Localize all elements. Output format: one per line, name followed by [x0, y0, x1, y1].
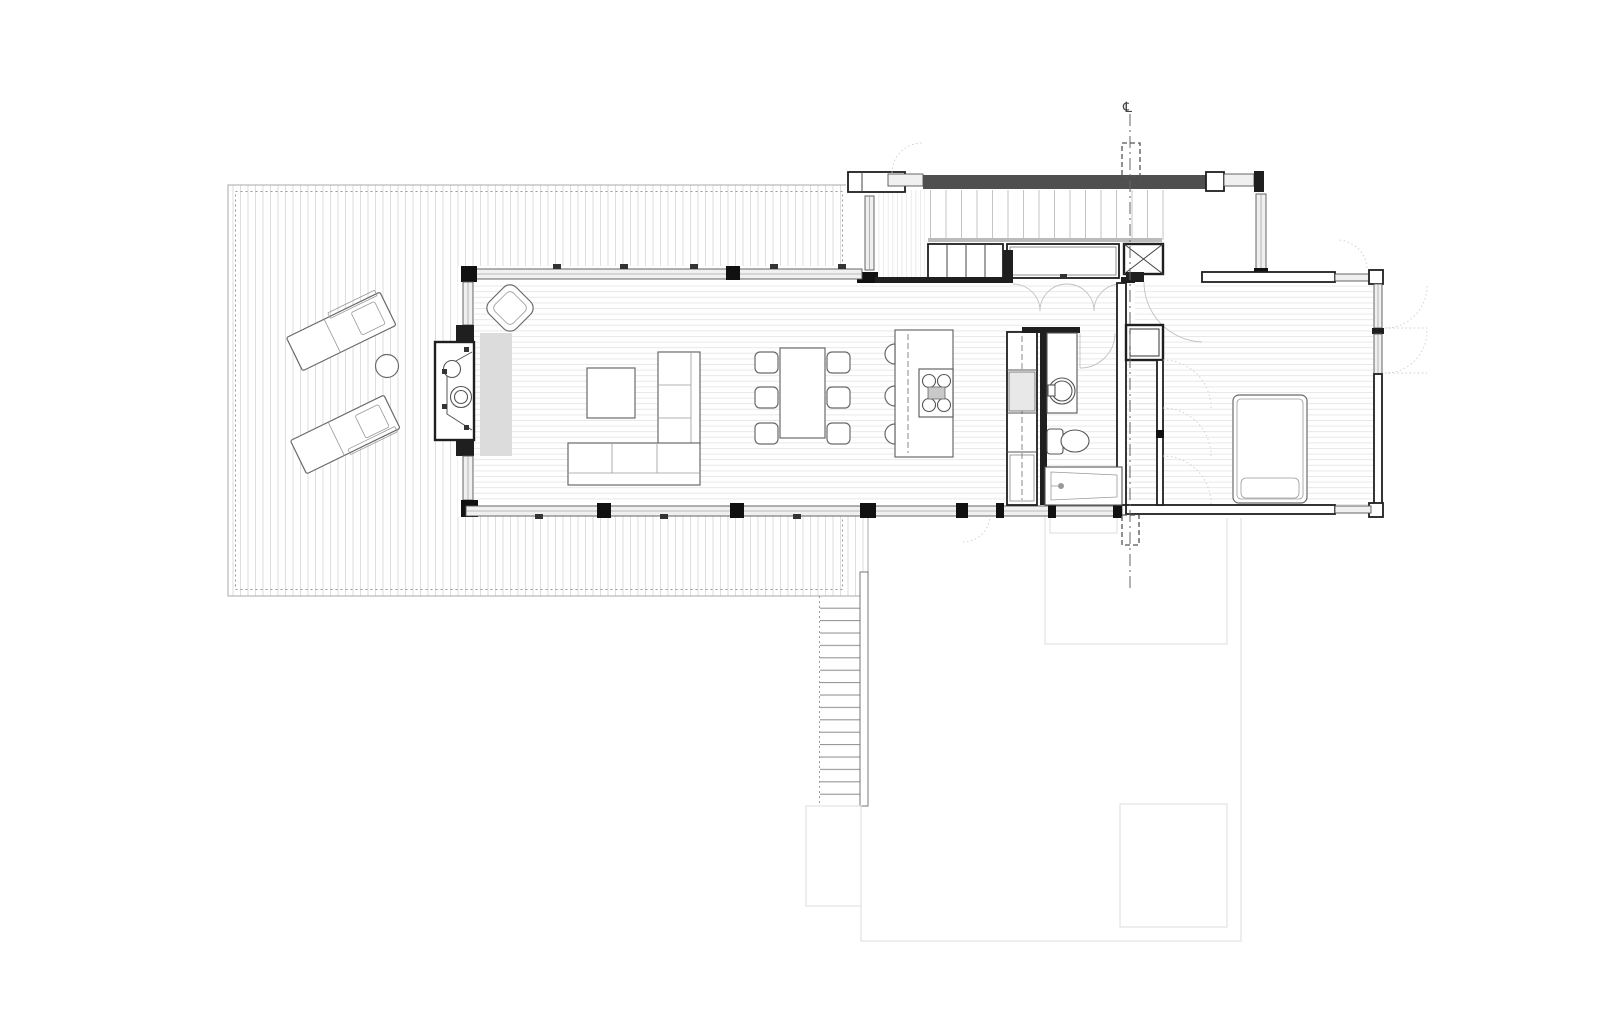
bathroom-north-wall: [1022, 327, 1080, 333]
bedroom-east-wall: [1374, 374, 1382, 504]
cooktop: [919, 369, 953, 417]
corner-post-ne: [1369, 270, 1383, 284]
exterior-stair: [820, 572, 869, 806]
closet-box: [1126, 325, 1163, 360]
dining-set: [755, 348, 850, 444]
bedroom-north-window: [1335, 274, 1371, 281]
wash-basin: [1047, 333, 1077, 413]
round-side-table: [376, 355, 399, 378]
storage-cabinet: [1007, 244, 1119, 278]
bathtub: [1045, 467, 1122, 505]
stair-rail: [860, 572, 868, 806]
bedroom-north-wall: [1202, 272, 1335, 282]
toilet: [1047, 429, 1089, 454]
dining-chair: [755, 423, 778, 444]
hall-north-wall: [875, 277, 1013, 283]
double-bed: [1233, 395, 1307, 503]
wardrobe-floor: [1126, 360, 1157, 505]
corner-post-nw: [461, 266, 477, 282]
coffee-table: [587, 368, 635, 418]
north-wall-window: [1224, 174, 1254, 186]
dining-chair: [827, 352, 850, 373]
entry-deck-boards: [925, 190, 1165, 240]
corner-post: [1254, 171, 1264, 192]
dining-chair: [755, 352, 778, 373]
pillar-block-east: [1206, 172, 1224, 191]
floor-plan-drawing: ℄: [0, 0, 1600, 1035]
bedroom-south-window: [1335, 506, 1371, 513]
dining-chair: [827, 387, 850, 408]
terrace-door-arc: [963, 515, 990, 542]
appliance: [1009, 372, 1035, 411]
north-wall-beam: [923, 175, 1206, 189]
dining-chair: [827, 423, 850, 444]
bedroom-south-wall: [1126, 505, 1335, 514]
floor-plan-canvas: ℄: [0, 0, 1600, 1035]
centerline-symbol: ℄: [1122, 100, 1132, 116]
outdoor-fireplace: [435, 342, 474, 440]
stair-treads: [820, 598, 861, 806]
tall-cabinet-run: [1007, 332, 1037, 505]
hearth-wall: [480, 333, 512, 456]
entry-door-leaf: [888, 174, 923, 186]
entry-deck-edge: [928, 238, 1162, 242]
entry-porch-floor: [875, 190, 925, 277]
dining-table: [780, 348, 825, 438]
dining-chair: [755, 387, 778, 408]
lower-terrace-outline: [806, 506, 1241, 941]
